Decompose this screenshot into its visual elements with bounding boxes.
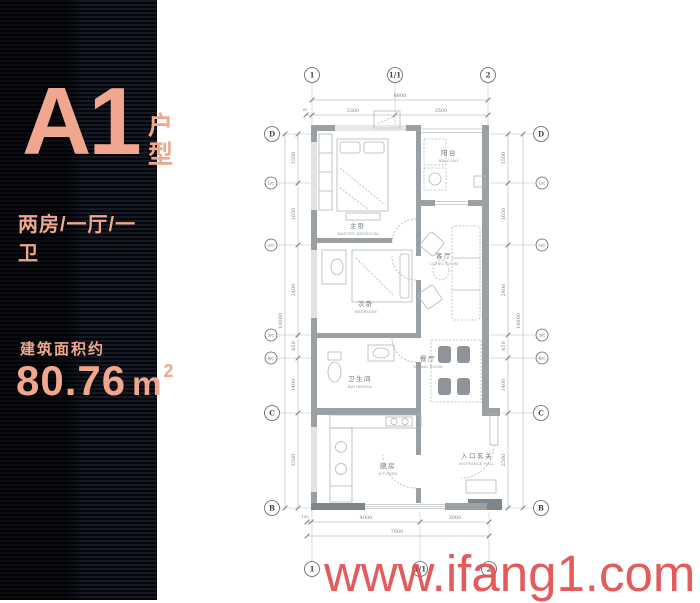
dim-right-seg-1: 1650 [501,208,507,221]
dim-right-seg-4: 1400 [501,379,507,392]
svg-text:KITCHEN: KITCHEN [379,472,398,476]
dim-left-seg-4: 1400 [291,379,297,392]
svg-text:ENTRANCE HALL: ENTRANCE HALL [459,462,494,466]
room-label-bathroom: 卫生间 BATHROOM [348,374,372,389]
room-label-entrance-hall: 入口玄关 ENTRANCE HALL [459,451,494,466]
svg-text:MASTER BEDROOM: MASTER BEDROOM [338,232,379,236]
kitchen-counter-icon [330,415,421,502]
area-unit: m [132,365,162,402]
toilet-icon [328,352,341,382]
bathroom-door-icon [392,338,416,362]
unit-name: A1 [22,74,139,170]
grid-right-sub1: 1/C [539,181,546,186]
dim-left-seg-3: 650 [291,341,297,351]
dim-right-total: 10000 [516,313,522,329]
grid-bottom-1: 1 [310,565,315,574]
svg-text:卫生间: 卫生间 [348,374,372,383]
grid-right-c: C [538,409,544,418]
dim-right-seg-0: 1500 [501,152,507,165]
armchair-icon [417,284,442,309]
grid-top-2: 2 [486,71,491,80]
room-label-living-room: 客厅 LIVING ROOM [430,251,459,266]
layout-description: 两房/一厅/一卫 [18,208,157,266]
grid-right-sub3: 3/C [539,333,546,338]
dim-bottom-seg-0: 100 [301,514,309,519]
svg-text:客厅: 客厅 [436,251,452,260]
grid-left-sub3: 3/C [268,333,275,338]
grid-left-sub2: 2/C [268,243,275,248]
dim-left-seg-1: 1650 [291,208,297,221]
grid-top-1: 1 [310,71,315,80]
entry-door-icon [461,414,498,478]
room-label-balcony: 阳台 BALCONY [439,148,459,163]
area-sup: 2 [163,361,174,381]
svg-text:主卧: 主卧 [350,221,366,230]
dim-right-seg-3: 650 [501,341,507,351]
room-label-kitchen: 厨房 KITCHEN [379,461,398,476]
grid-top-1-1: 1/1 [389,71,401,80]
unit-suffix: 户型 [144,112,173,170]
furniture [319,111,496,502]
area-value: 80.76m2 [16,357,174,405]
dimension-bottom: 100 4000 3000 7000 [301,514,491,538]
dim-left-seg-2: 2400 [291,284,297,297]
grid-left-b: B [269,504,275,513]
svg-text:阳台: 阳台 [441,148,457,157]
svg-text:次卧: 次卧 [358,299,374,308]
dim-left-seg-0: 1500 [291,152,297,165]
dim-bottom-seg-1: 4000 [360,515,373,521]
grid-left-sub1: 1/C [268,181,275,186]
master-door-icon [392,219,416,243]
dim-left-total: 10000 [278,313,284,329]
room-label-bedroom: 次卧 BEDROOM [355,299,377,314]
sink-icon [368,345,394,361]
dim-right-seg-5: 2500 [501,454,507,467]
dim-bottom-seg-2: 3000 [449,515,462,521]
svg-text:BATHROOM: BATHROOM [348,385,372,389]
dim-right-seg-2: 2400 [501,284,507,297]
dim-top-total: 6800 [394,93,407,99]
grid-right-sub2: 2/C [539,243,546,248]
dim-bottom-total: 7000 [391,529,404,535]
svg-text:厨房: 厨房 [380,461,396,470]
grid-left-sub4: 4/C [268,356,275,361]
area-label: 建筑面积约 [20,338,105,359]
grid-left-c: C [269,409,275,418]
dimension-left: 10000 1500 1650 2400 650 1400 2500 [278,132,300,511]
svg-text:入口玄关: 入口玄关 [461,451,493,460]
grid-left-d: D [269,130,275,139]
svg-text:DINING ROOM: DINING ROOM [413,365,442,369]
dimension-top: 6800 60 3300 3500 [303,93,491,117]
left-panel: A1 户型 两房/一厅/一卫 建筑面积约 80.76m2 [0,0,157,600]
desk-icon [322,250,346,284]
dimension-right: 1500 1650 2400 650 1400 2500 10000 [501,132,525,511]
watermark: www.ifang1.com [324,544,695,603]
grid-right-b: B [538,504,544,513]
grid-right-d: D [538,130,544,139]
svg-text:BEDROOM: BEDROOM [355,310,377,314]
svg-text:BALCONY: BALCONY [439,159,459,163]
washing-machine-icon [424,139,446,190]
dim-left-seg-5: 2500 [291,454,297,467]
bed-icon [337,139,388,220]
dim-top-seg-2: 3500 [435,108,448,114]
grid-markers: 1 1/1 2 1 1/1 2 D 1/C 2/C 3/C 4/C C B D … [265,68,549,577]
grid-right-sub4: 4/C [539,356,546,361]
svg-text:餐厅: 餐厅 [420,354,436,363]
room-label-master-bedroom: 主卧 MASTER BEDROOM [338,221,379,236]
shoe-cabinet-icon [466,480,496,493]
sofa-icon [452,226,480,320]
bed2-icon [352,250,412,302]
dining-table-icon [431,340,481,402]
wardrobe-icon [319,134,332,210]
area-number: 80.76 [16,357,126,404]
svg-text:LIVING ROOM: LIVING ROOM [430,262,459,266]
dim-top-seg-0: 60 [303,107,308,112]
dim-top-seg-1: 3300 [347,108,360,114]
unit-title: A1 户型 [22,74,201,170]
